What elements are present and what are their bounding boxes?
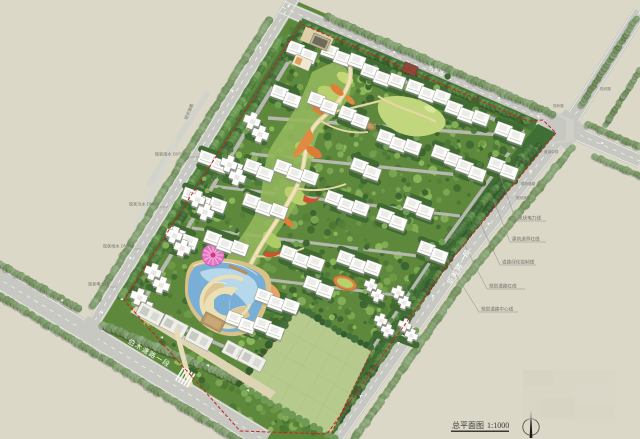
svg-text:现状道路: 现状道路 <box>521 181 536 186</box>
svg-text:1:1000: 1:1000 <box>487 421 509 430</box>
svg-text:建筑退界红线: 建筑退界红线 <box>512 236 540 243</box>
svg-text:道路绿化控制线: 道路绿化控制线 <box>502 259 535 266</box>
svg-text:规划道路红线: 规划道路红线 <box>489 283 517 290</box>
svg-text:规划路: 规划路 <box>600 86 611 91</box>
svg-text:现状给水 DN300: 现状给水 DN300 <box>103 243 133 250</box>
svg-text:道路中线: 道路中线 <box>544 149 559 154</box>
svg-text:现状电力线: 现状电力线 <box>518 215 541 222</box>
svg-text:总平面图: 总平面图 <box>452 420 484 430</box>
svg-text:规划道路中心线: 规划道路中心线 <box>481 306 514 313</box>
svg-text:规划道路: 规划道路 <box>516 195 531 200</box>
svg-text:现状雨水 DN500: 现状雨水 DN500 <box>155 151 185 158</box>
svg-text:现状电力线: 现状电力线 <box>88 281 110 288</box>
svg-text:现状污水 DN400: 现状污水 DN400 <box>129 201 159 208</box>
svg-text:现状路: 现状路 <box>553 103 564 108</box>
